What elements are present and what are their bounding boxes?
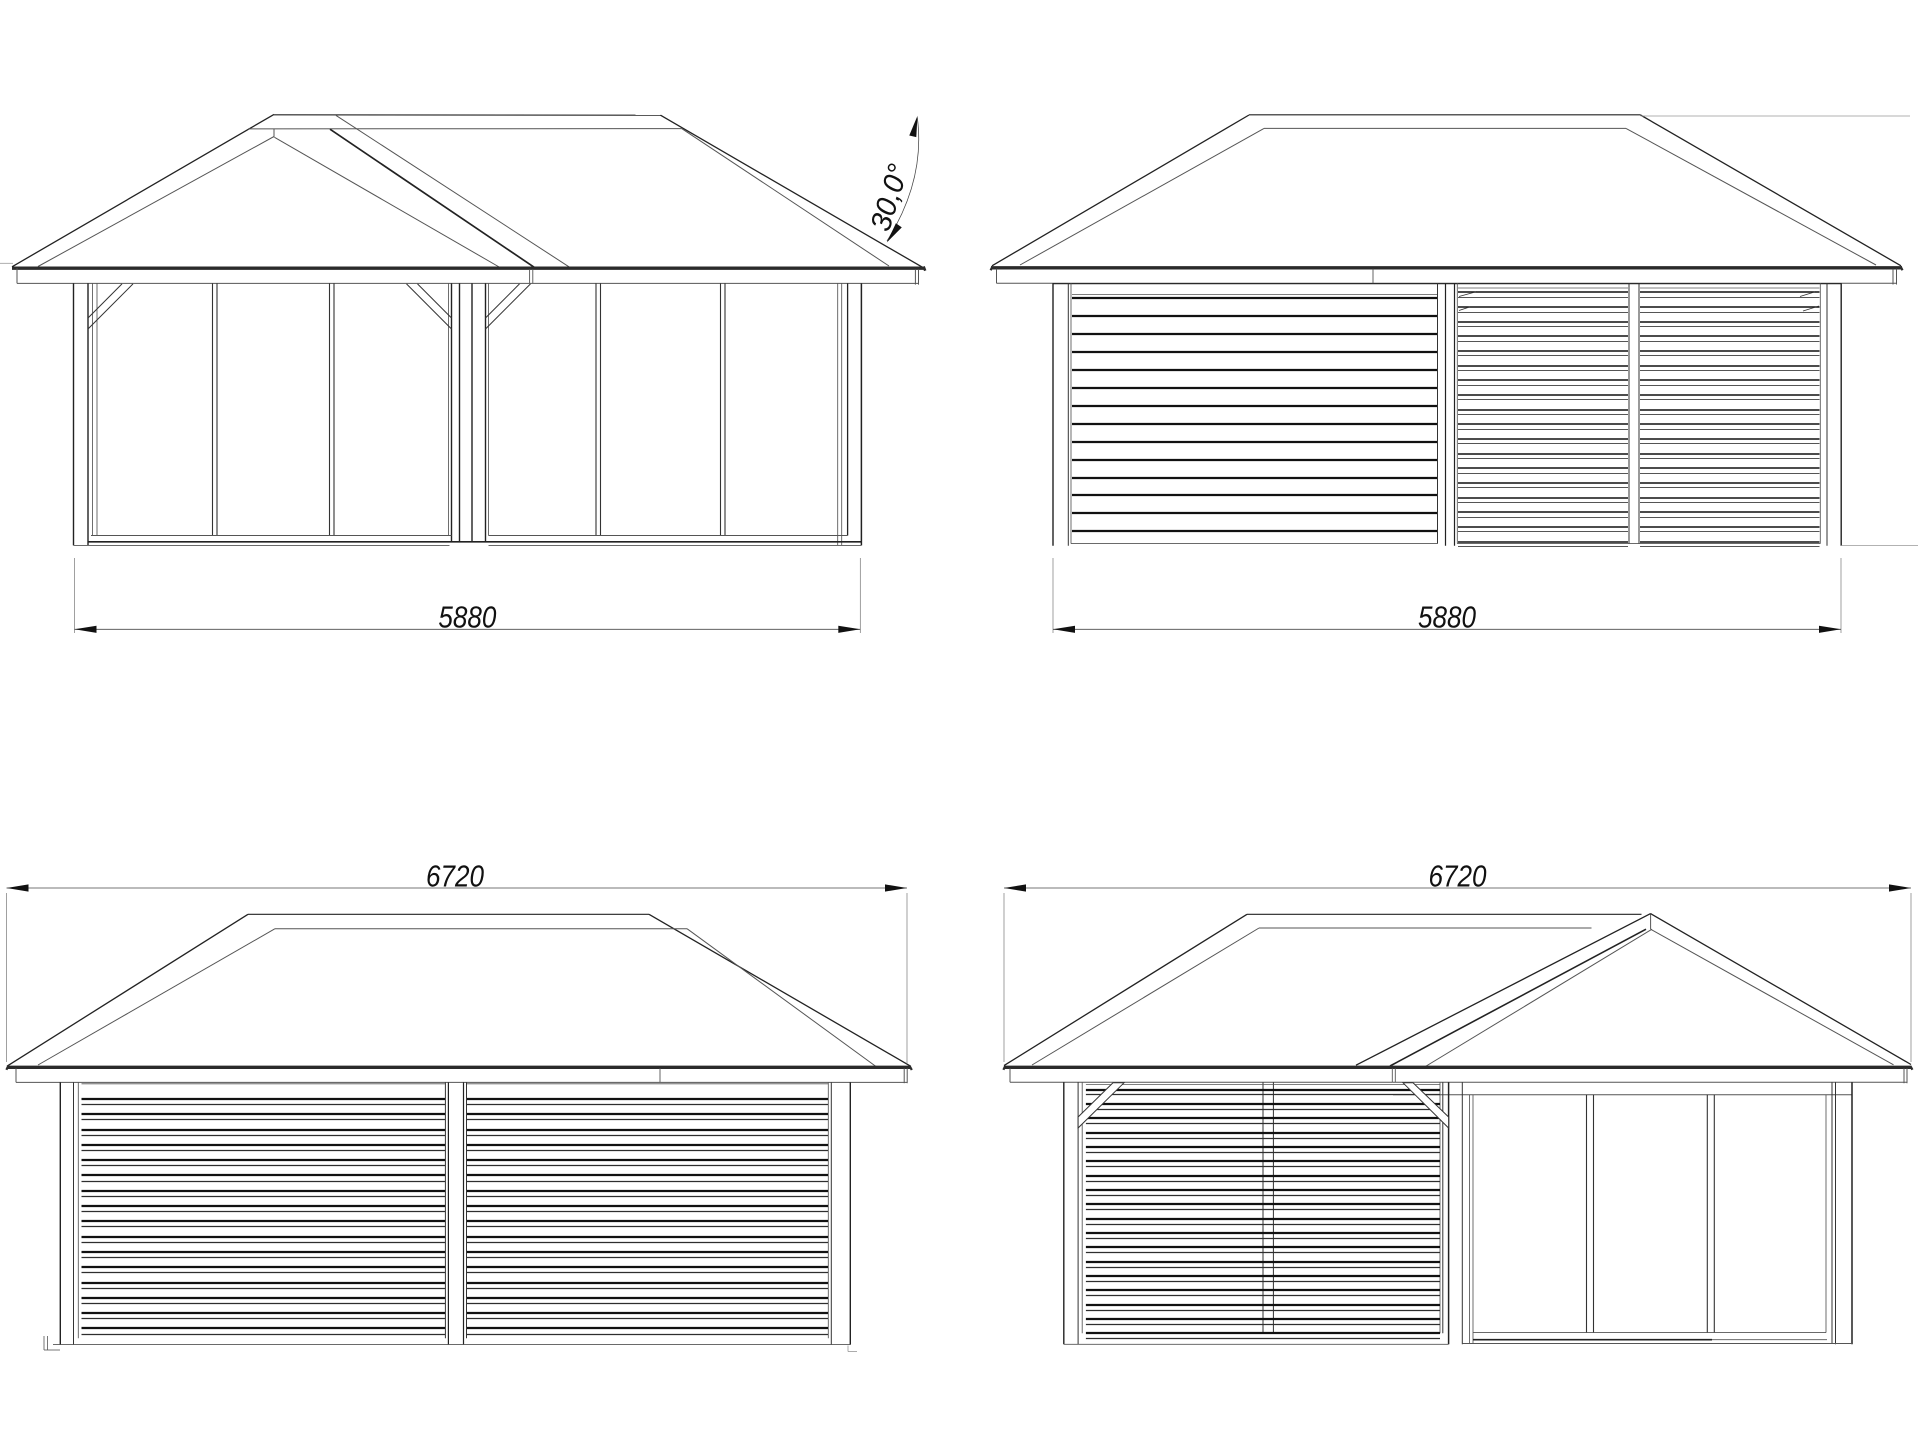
svg-text:5880: 5880 bbox=[1418, 600, 1476, 635]
svg-text:6720: 6720 bbox=[426, 859, 484, 894]
svg-text:6720: 6720 bbox=[1429, 859, 1487, 894]
svg-text:5880: 5880 bbox=[438, 600, 496, 635]
